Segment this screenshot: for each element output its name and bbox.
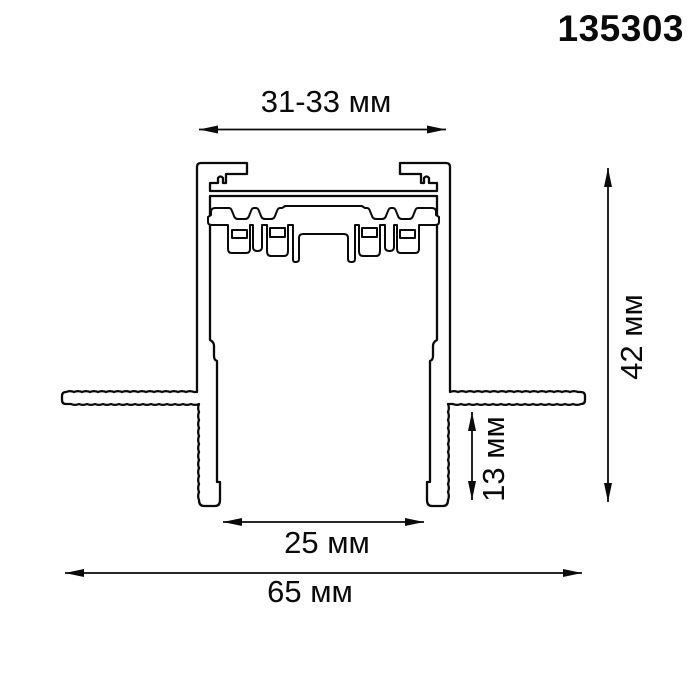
dim-label-recess-depth: 13 мм (477, 404, 511, 514)
dim-label-height: 42 мм (615, 267, 651, 407)
dim-label-opening-width: 25 мм (227, 526, 427, 560)
technical-drawing-page: 135303 31-33 мм 42 мм 13 мм 25 мм 65 мм (0, 0, 700, 700)
dim-label-top-width: 31-33 мм (226, 85, 426, 119)
dim-label-overall-width: 65 мм (210, 575, 410, 609)
part-number: 135303 (558, 8, 684, 50)
track-insert-outline (208, 206, 439, 262)
